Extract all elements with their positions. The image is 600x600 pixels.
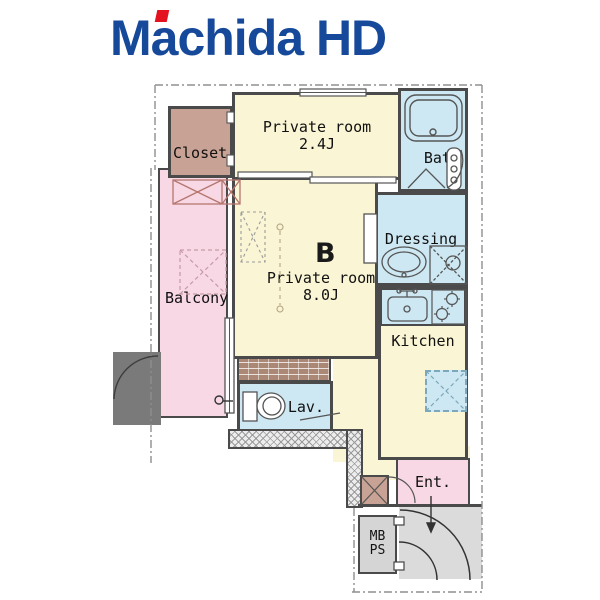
shoe-cabinet bbox=[360, 475, 389, 506]
room-entrance: Ent. bbox=[396, 458, 470, 506]
floor-plan-page: Machida HD Balcony Closet Private room2.… bbox=[0, 0, 600, 600]
room-bath: Bath bbox=[398, 88, 468, 192]
room-private-2-4: Private room2.4J bbox=[232, 92, 402, 180]
unit-bottom-wall bbox=[358, 504, 482, 507]
adjacent-door-slab bbox=[113, 352, 161, 425]
storage-counter bbox=[237, 357, 331, 382]
fridge-space bbox=[425, 370, 467, 412]
room-balcony: Balcony bbox=[158, 168, 228, 418]
unit-label: B bbox=[315, 238, 336, 269]
lavatory-label: Lav. bbox=[288, 399, 324, 416]
private-room-small-label: Private room2.4J bbox=[235, 119, 399, 153]
entrance-label: Ent. bbox=[398, 474, 468, 491]
mb-ps-label: MBPS bbox=[360, 530, 395, 558]
private-room-b-label: Private room8.0J bbox=[251, 270, 391, 304]
closet-label: Closet bbox=[173, 145, 227, 162]
mb-ps-box: MBPS bbox=[358, 515, 397, 574]
concrete-wall-horizontal bbox=[228, 429, 362, 449]
room-private-8-0: B Private room8.0J bbox=[232, 177, 378, 359]
balcony-label: Balcony bbox=[165, 290, 228, 307]
kitchen-label: Kitchen bbox=[381, 333, 465, 350]
room-closet: Closet bbox=[168, 106, 233, 178]
common-corridor bbox=[399, 507, 482, 579]
floor-plan: Balcony Closet Private room2.4J Bath Dre… bbox=[0, 0, 600, 600]
dressing-label: Dressing bbox=[377, 231, 465, 248]
kitchen-counter bbox=[380, 288, 466, 326]
bath-label: Bath bbox=[424, 150, 460, 167]
room-lavatory: Lav. bbox=[237, 381, 333, 432]
